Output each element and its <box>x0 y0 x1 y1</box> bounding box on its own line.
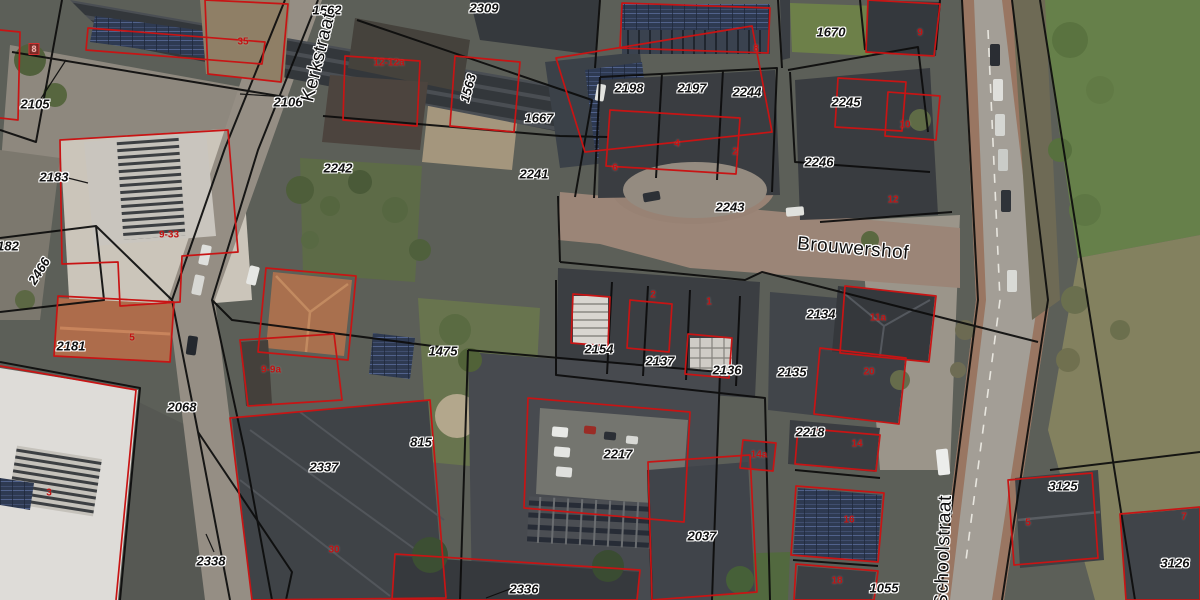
aerial-imagery <box>0 0 1200 600</box>
map-canvas[interactable]: 1562230921052106156316672198219722442245… <box>0 0 1200 600</box>
